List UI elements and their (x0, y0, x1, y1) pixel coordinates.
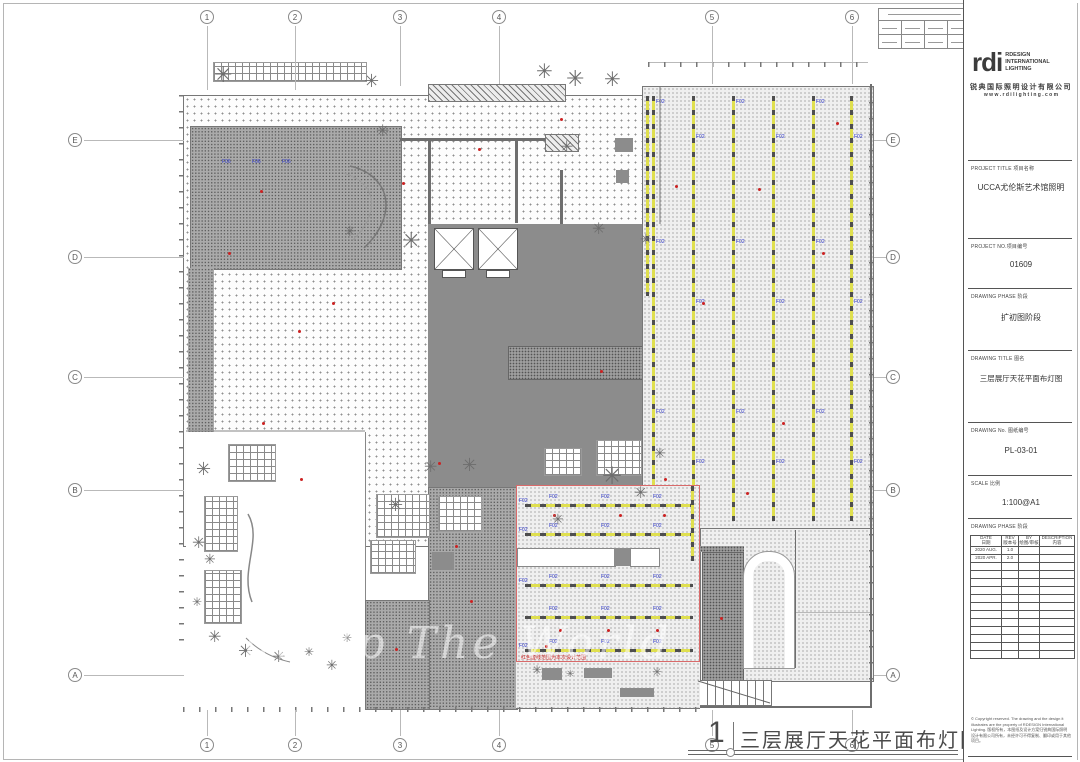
title-block: rdi RDESIGN INTERNATIONAL LIGHTING 锐典国际照… (963, 0, 1077, 762)
grid-label: 3 (398, 741, 402, 750)
grid-leader (852, 26, 853, 84)
grid-label: 1 (205, 741, 209, 750)
grid-leader (84, 675, 184, 676)
grid-label: C (72, 373, 78, 382)
rev-row (971, 634, 1075, 642)
grid-bubble-col: 5 (705, 10, 719, 24)
grid-leader (84, 377, 184, 378)
phase-label: DRAWING PHASE 阶段 (971, 293, 1028, 300)
logo-line: RDESIGN (1005, 52, 1050, 59)
grid-label: C (890, 373, 896, 382)
grid-bubble-row: D (68, 250, 82, 264)
grid-label: D (890, 253, 896, 262)
curtain-wall-bottom (183, 707, 703, 712)
grid-label: A (890, 671, 895, 680)
grid-leader (874, 257, 886, 258)
grid-bubble-col: 1 (200, 10, 214, 24)
divider (968, 475, 1072, 476)
rev-header: REV版本号 (1002, 536, 1019, 547)
grid-label: E (890, 136, 895, 145)
rev-row (971, 642, 1075, 650)
rev-header: DESCRIPTION内容 (1040, 536, 1075, 547)
grid-label: 4 (497, 741, 501, 750)
grid-label: 5 (710, 13, 714, 22)
logo-line: LIGHTING (1005, 66, 1050, 73)
grid-leader (499, 26, 500, 84)
divider (968, 756, 1072, 757)
grid-bubble-row: A (68, 668, 82, 682)
grid-bubble-col: 2 (288, 10, 302, 24)
rev-row (971, 578, 1075, 586)
grid-bubble-col: 3 (393, 738, 407, 752)
rev-row (971, 650, 1075, 658)
logo-website: w w w . r d i l i g h t i n g . c o m (964, 92, 1078, 98)
signature-cell (925, 35, 948, 49)
wall-line (700, 706, 872, 708)
divider (968, 350, 1072, 351)
drawing-no-label: DRAWING No. 图纸编号 (971, 427, 1029, 434)
grid-label: 6 (850, 13, 854, 22)
curtain-wall-left (179, 95, 184, 643)
grid-leader (874, 490, 886, 491)
grid-label: 1 (205, 13, 209, 22)
grid-leader (712, 26, 713, 84)
grid-bubble-row: E (68, 133, 82, 147)
rev-row (971, 570, 1075, 578)
signature-cell (902, 21, 925, 35)
grid-bubble-row: B (68, 483, 82, 497)
grid-leader (499, 710, 500, 736)
curtain-wall-top (648, 62, 868, 67)
signature-table (878, 8, 971, 49)
grid-label: 2 (293, 741, 297, 750)
grid-label: B (890, 486, 895, 495)
project-title-label: PROJECT TITLE 项目名称 (971, 165, 1034, 172)
grid-bubble-row: E (886, 133, 900, 147)
divider (968, 288, 1072, 289)
watermark: Light Up The World (160, 618, 672, 669)
grid-bubble-row: B (886, 483, 900, 497)
signature-cell (925, 21, 948, 35)
rev-row (971, 594, 1075, 602)
project-title-value: UCCA尤伦斯艺术馆照明 (964, 182, 1078, 193)
grid-bubble-row: D (886, 250, 900, 264)
project-no-value: 01609 (964, 260, 1078, 269)
rev-header: BY绘图/审核 (1019, 536, 1040, 547)
grid-label: D (72, 253, 78, 262)
caption-marker (726, 748, 735, 757)
rev-row (971, 626, 1075, 634)
grid-label: E (72, 136, 77, 145)
grid-bubble-col: 1 (200, 738, 214, 752)
signature-cell (879, 9, 971, 21)
drawing-title-value: 三层展厅天花平面布灯图 (964, 373, 1078, 384)
drawing-sheet: F02 F02 F02 F02 F02 F02 F02 F02 F02 F02 … (0, 0, 1080, 762)
grid-leader (400, 26, 401, 86)
grid-leader (84, 257, 184, 258)
grid-leader (84, 140, 184, 141)
caption-divider (733, 722, 734, 752)
grid-bubble-col: 4 (492, 738, 506, 752)
logo-line: INTERNATIONAL (1005, 59, 1050, 66)
project-no-label: PROJECT NO.项目编号 (971, 243, 1028, 250)
grid-leader (400, 710, 401, 736)
logo-company: 锐典国际照明设计有限公司 (964, 82, 1078, 92)
grid-leader (207, 26, 208, 90)
drawing-title-label: DRAWING TITLE 图名 (971, 355, 1024, 362)
drawing-number: 1 (708, 716, 725, 750)
grid-bubble-col: 4 (492, 10, 506, 24)
grid-leader (84, 490, 184, 491)
grid-leader (295, 26, 296, 90)
rev-row (971, 562, 1075, 570)
grid-leader (874, 675, 886, 676)
rev-header: DATE日期 (971, 536, 1002, 547)
rev-row: 2020 APR.2.0 (971, 554, 1075, 562)
rev-label: DRAWING PHASE 阶段 (971, 523, 1028, 530)
phase-value: 扩初图阶段 (964, 312, 1078, 323)
rev-row (971, 602, 1075, 610)
drawing-no-value: PL-03-01 (964, 446, 1078, 455)
revision-table: DATE日期 REV版本号 BY绘图/审核 DESCRIPTION内容 2020… (970, 535, 1075, 659)
signature-cell (879, 35, 902, 49)
grid-label: A (72, 671, 77, 680)
grid-bubble-row: A (886, 668, 900, 682)
signature-cell (902, 35, 925, 49)
rev-row (971, 618, 1075, 626)
divider (968, 422, 1072, 423)
scale-label: SCALE 比例 (971, 480, 1000, 487)
divider (968, 518, 1072, 519)
grid-leader (874, 377, 886, 378)
divider (968, 238, 1072, 239)
grid-bubble-col: 6 (845, 10, 859, 24)
grid-label: 4 (497, 13, 501, 22)
wall-line (870, 84, 872, 708)
grid-leader (295, 710, 296, 736)
grid-leader (874, 140, 886, 141)
grid-bubble-row: C (68, 370, 82, 384)
grid-label: 2 (293, 13, 297, 22)
grid-bubble-col: 3 (393, 10, 407, 24)
signature-cell (879, 21, 902, 35)
logo: rdi RDESIGN INTERNATIONAL LIGHTING (972, 52, 1050, 73)
rev-row (971, 586, 1075, 594)
grid-bubble-row: C (886, 370, 900, 384)
grid-bubble-col: 2 (288, 738, 302, 752)
grid-label: 3 (398, 13, 402, 22)
grid-label: B (72, 486, 77, 495)
rev-row (971, 610, 1075, 618)
logo-brand: rdi (972, 52, 1002, 73)
divider (968, 160, 1072, 161)
rev-row: 2020 AUG.1.0 (971, 546, 1075, 554)
scale-value: 1:100@A1 (964, 498, 1078, 507)
copyright-note: © Copyright reserved. The drawing and th… (971, 716, 1071, 744)
grid-leader (207, 710, 208, 736)
